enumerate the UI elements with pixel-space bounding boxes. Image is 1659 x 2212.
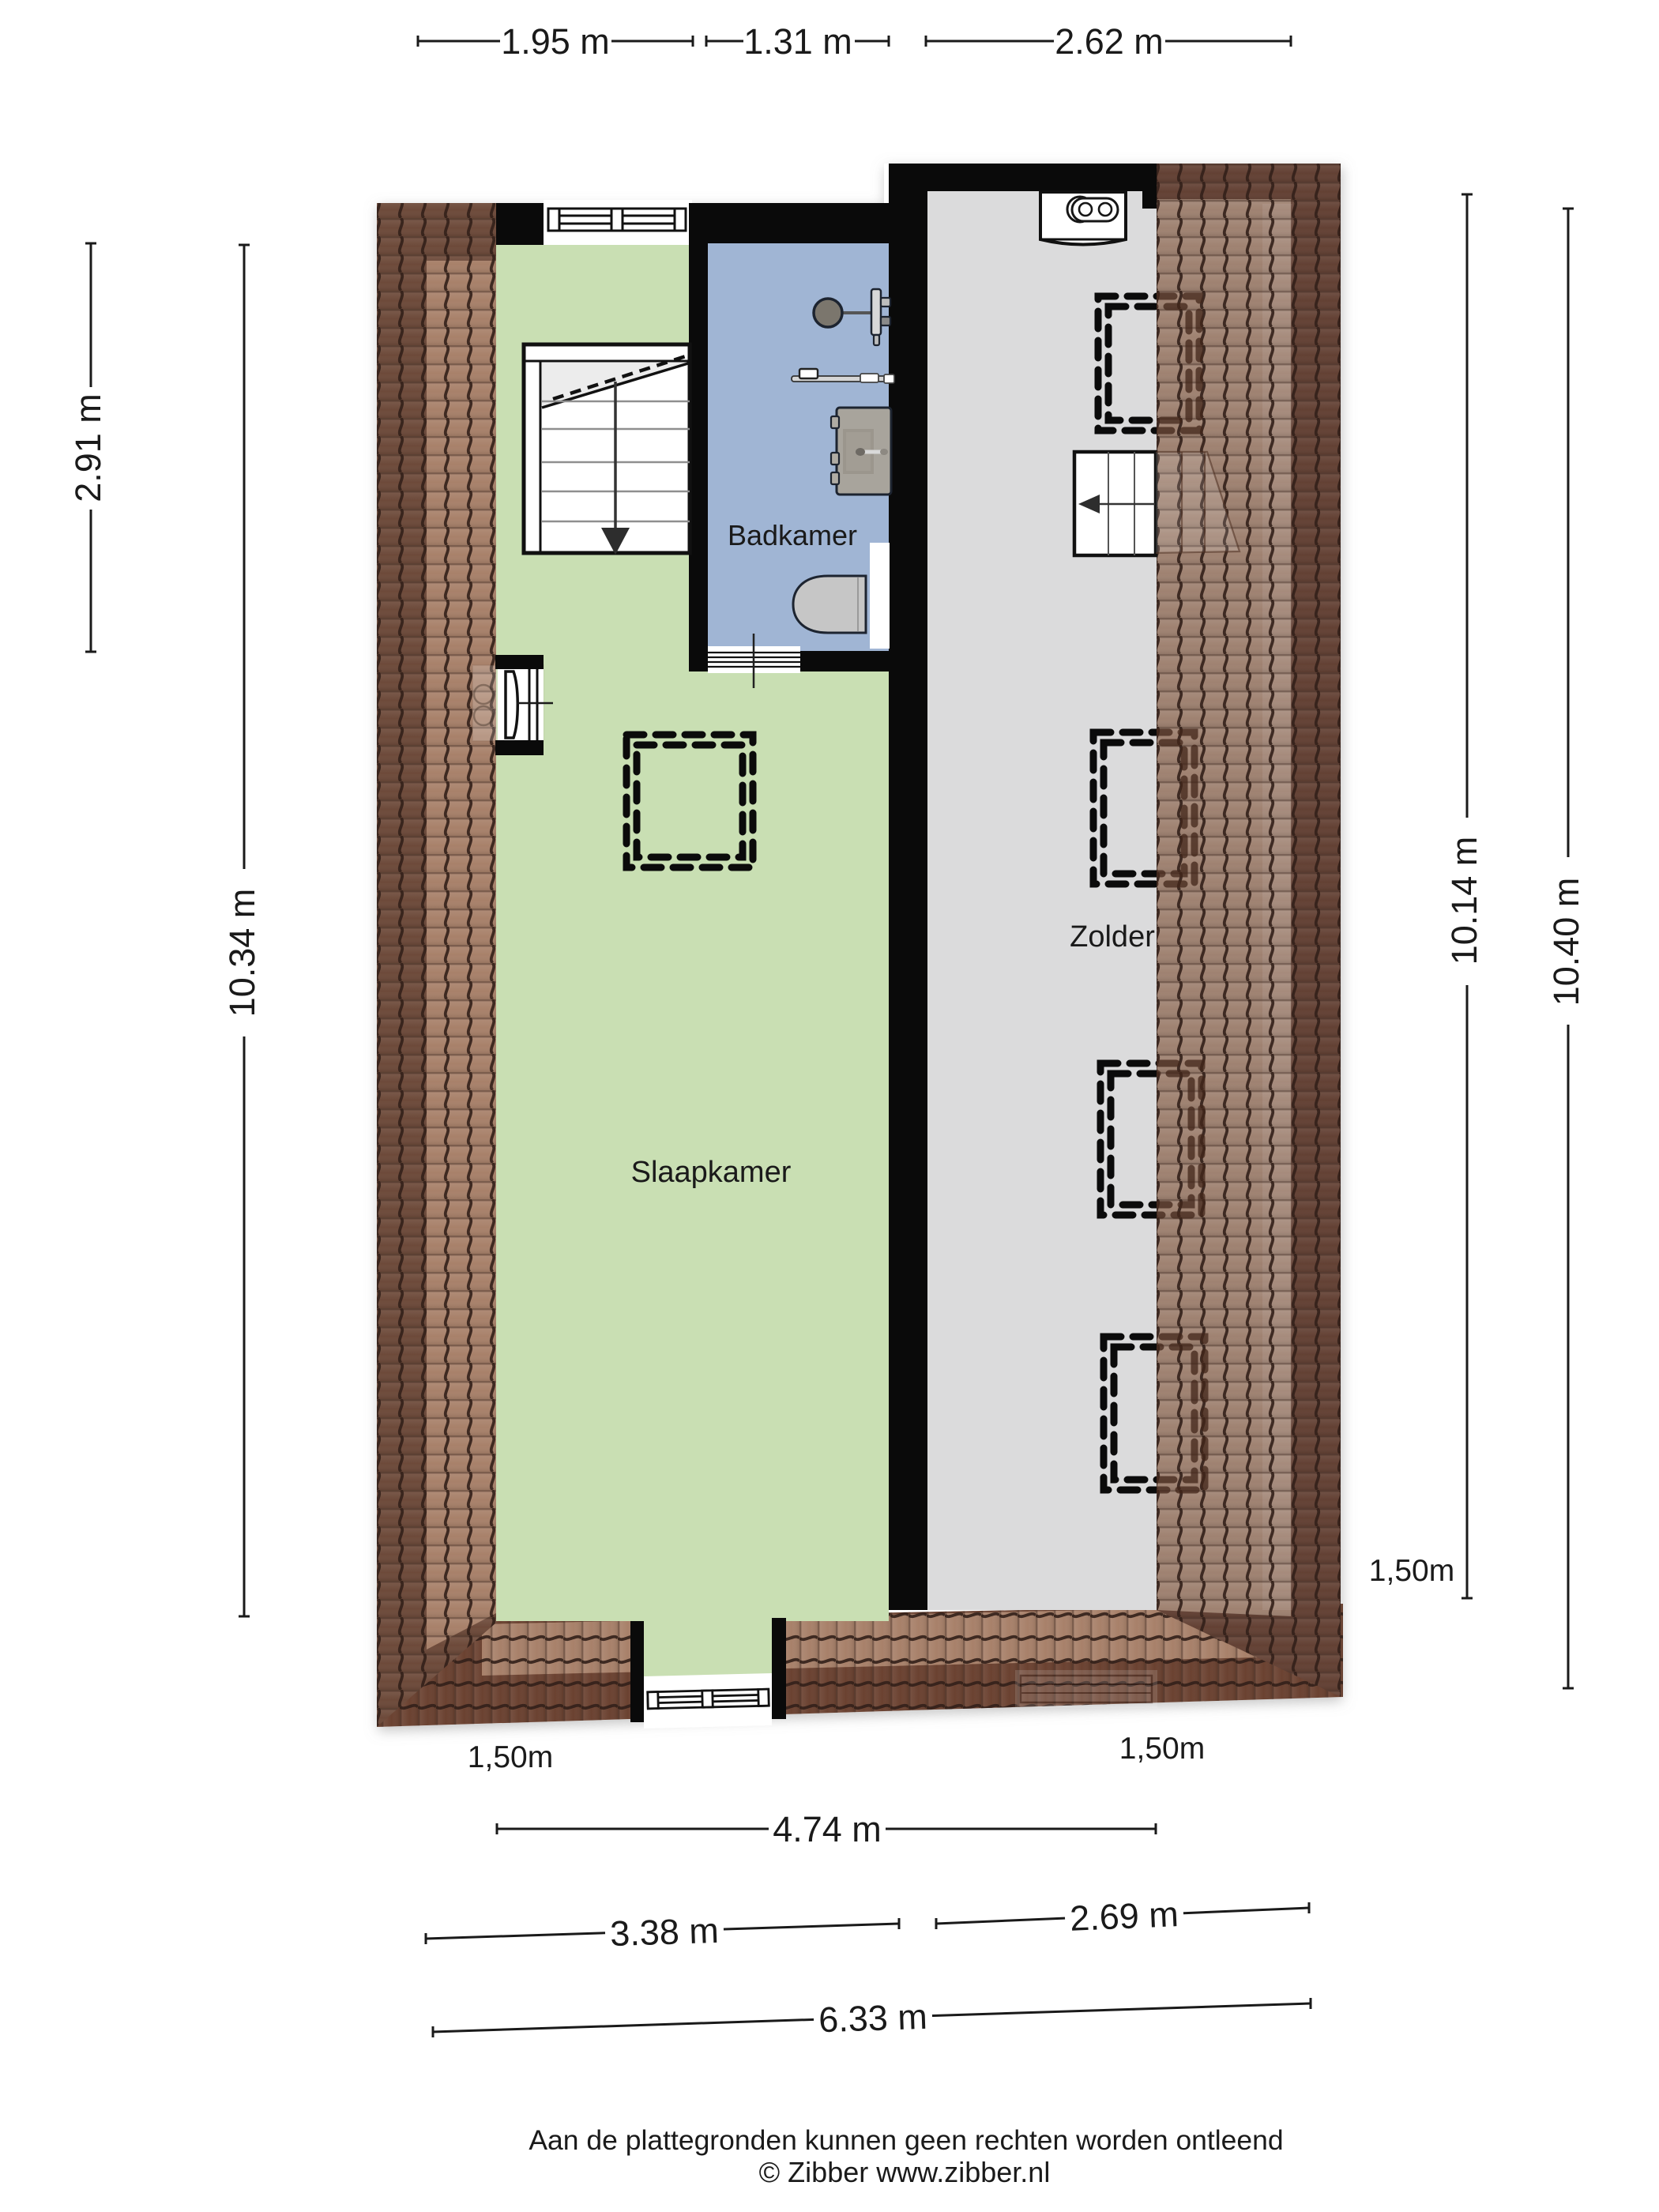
svg-text:2.91 m: 2.91 m: [68, 393, 108, 502]
svg-text:10.14 m: 10.14 m: [1444, 837, 1484, 965]
svg-text:1.95 m: 1.95 m: [501, 21, 610, 62]
svg-text:Aan de plattegronden kunnen ge: Aan de plattegronden kunnen geen rechten…: [529, 2124, 1283, 2156]
svg-text:Zolder: Zolder: [1070, 920, 1155, 954]
svg-text:1,50m: 1,50m: [1119, 1732, 1205, 1766]
svg-text:Badkamer: Badkamer: [728, 519, 857, 551]
svg-text:1.31 m: 1.31 m: [743, 21, 852, 62]
svg-text:10.34 m: 10.34 m: [222, 889, 262, 1018]
svg-text:Slaapkamer: Slaapkamer: [631, 1156, 792, 1189]
svg-text:1,50m: 1,50m: [1369, 1554, 1454, 1588]
svg-text:© Zibber www.zibber.nl: © Zibber www.zibber.nl: [759, 2156, 1051, 2188]
svg-text:3.38 m: 3.38 m: [609, 1910, 719, 1954]
svg-text:2.69 m: 2.69 m: [1069, 1894, 1179, 1939]
svg-text:10.40 m: 10.40 m: [1546, 878, 1586, 1006]
svg-text:6.33 m: 6.33 m: [818, 1996, 927, 2041]
svg-text:4.74 m: 4.74 m: [773, 1809, 882, 1849]
svg-text:2.62 m: 2.62 m: [1055, 21, 1164, 62]
svg-text:1,50m: 1,50m: [468, 1740, 553, 1774]
